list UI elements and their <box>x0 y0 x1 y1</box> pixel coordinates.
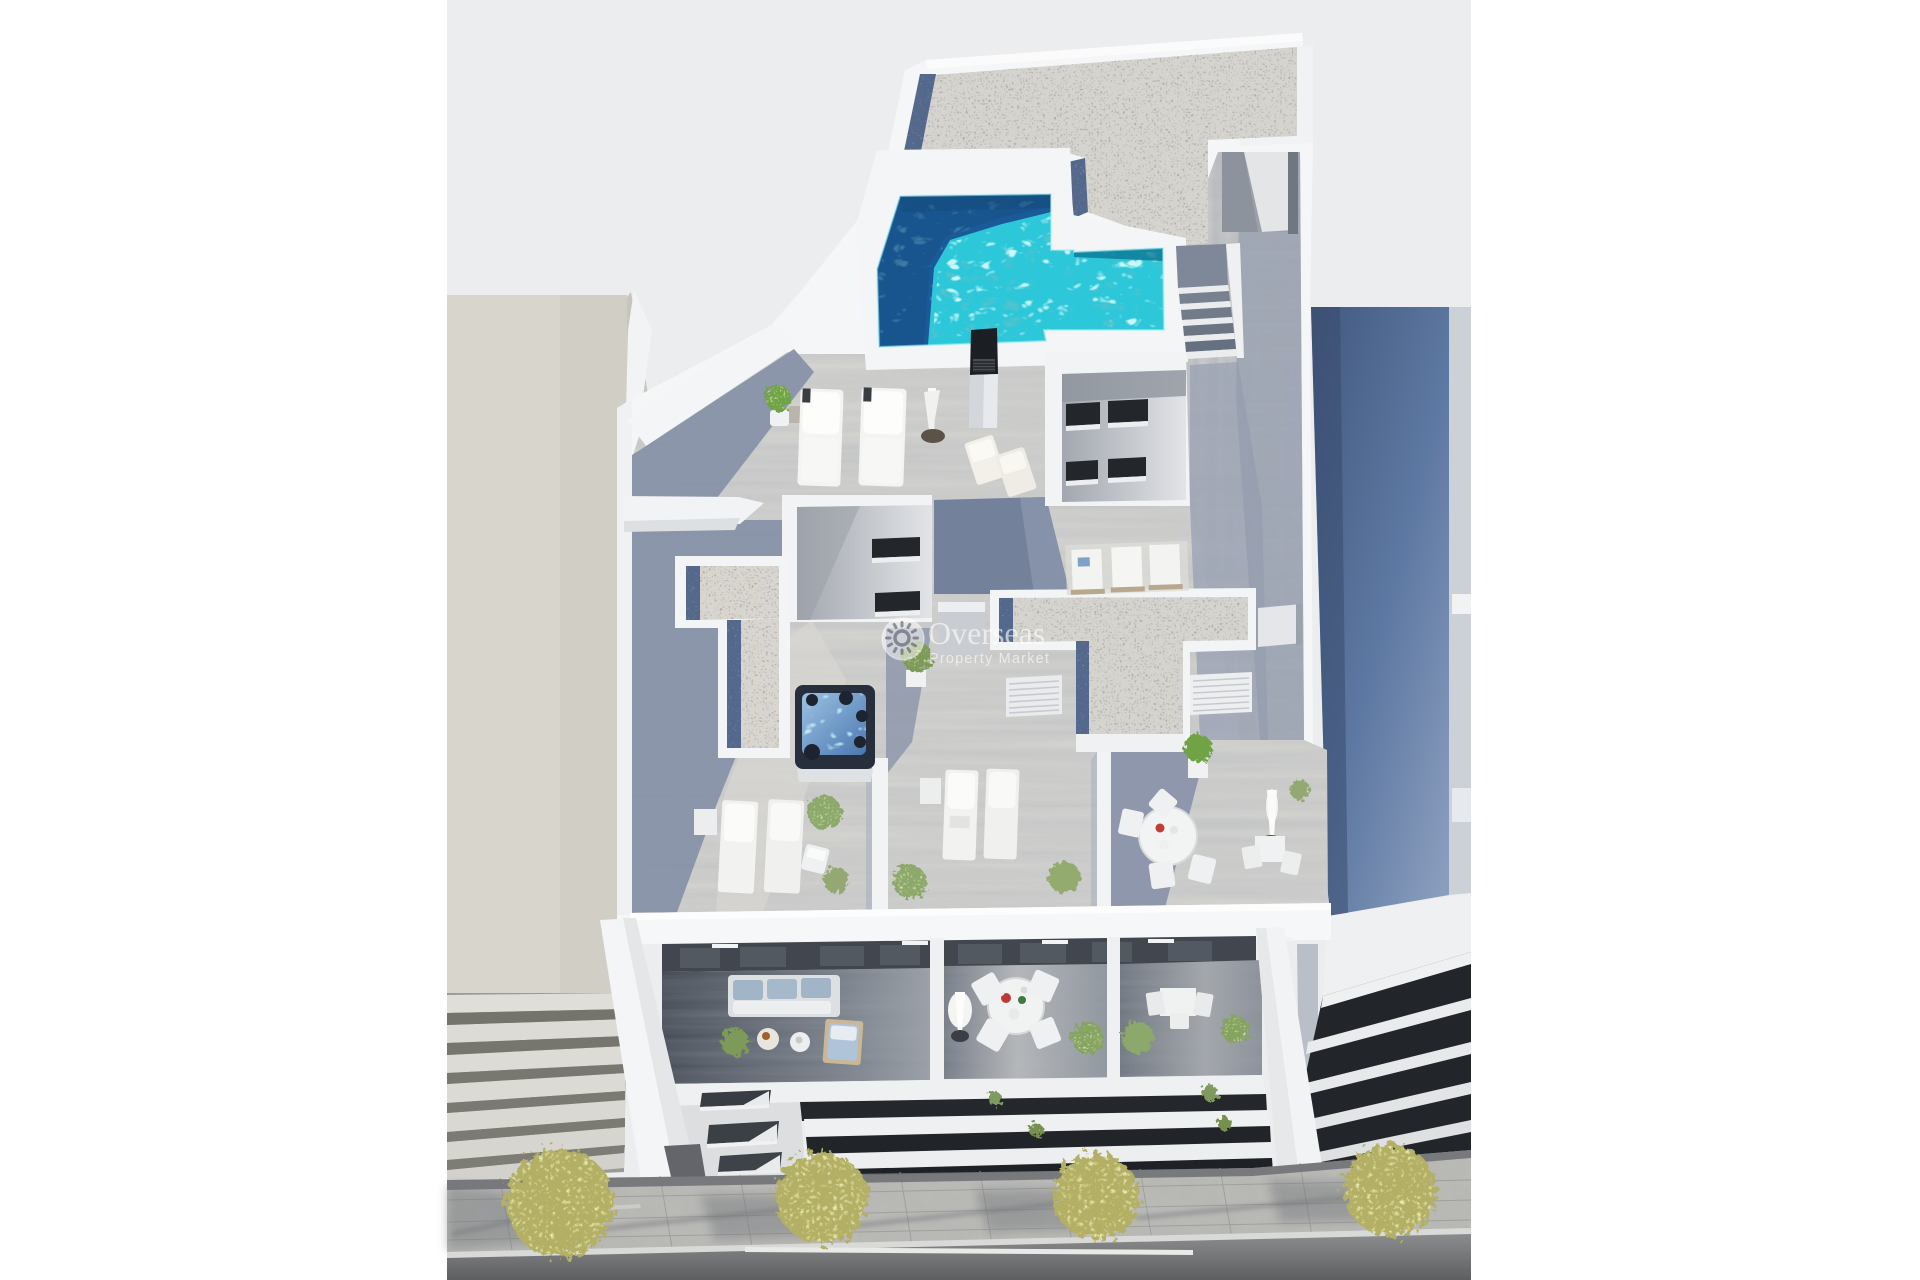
svg-text:Property Market: Property Market <box>929 651 1050 667</box>
svg-text:Overseas: Overseas <box>928 615 1045 651</box>
